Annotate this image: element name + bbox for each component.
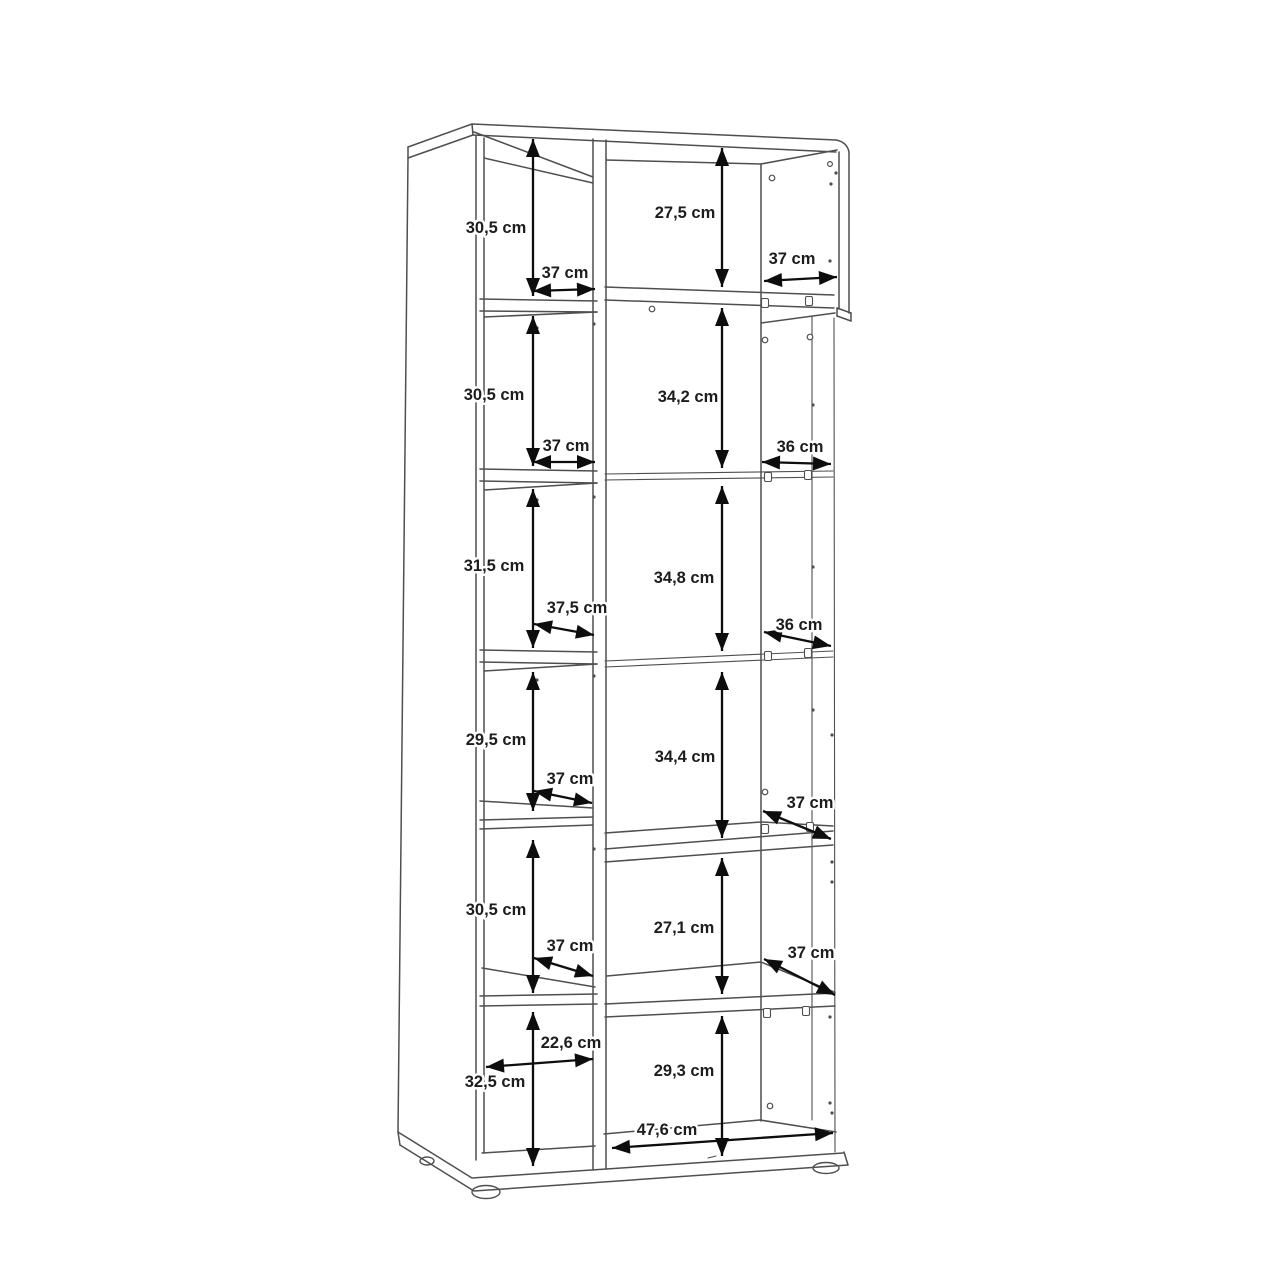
dim-label-left-height-2: 30,5 cm [464,386,525,404]
dim-arrow-left-width-3 [534,624,594,635]
dim-label-left-width-4: 37 cm [547,770,594,788]
dim-label-right-height-2: 34,2 cm [658,388,719,406]
dim-arrow-right-width-2 [762,462,831,464]
dim-label-right-width-3: 36 cm [776,616,823,634]
bottom-panel [398,1132,843,1178]
dim-label-left-width-3: 37,5 cm [547,599,608,617]
foot-front-left [472,1186,500,1199]
dim-label-left-width-2: 37 cm [543,437,590,455]
dim-arrow-left-width-6 [486,1059,593,1067]
dim-label-right-height-5: 27,1 cm [654,919,715,937]
dim-label-right-height-4: 34,4 cm [655,748,716,766]
dim-arrow-right-width-1 [764,277,837,281]
glass-shelf [605,651,833,661]
foot-front-right [813,1163,839,1174]
dim-label-left-height-3: 31,5 cm [464,557,525,575]
dim-label-left-height-5: 30,5 cm [466,901,527,919]
dim-label-left-height-6: 32,5 cm [465,1073,526,1091]
dim-label-right-height-1: 27,5 cm [655,204,716,222]
dim-arrow-left-width-5 [534,958,593,976]
cabinet-outline [398,124,851,1191]
dim-arrow-right-width-5 [764,959,835,995]
dim-label-right-width-1: 37 cm [769,250,816,268]
shelf [480,299,597,301]
left-side-panel [398,158,408,1132]
dim-arrow-left-width-4 [534,791,592,803]
dim-label-left-height-4: 29,5 cm [466,731,527,749]
dim-label-right-width-5: 37 cm [788,944,835,962]
shelves-right-column [605,287,835,1017]
diagram-canvas: 30,5 cm 30,5 cm 31,5 cm 29,5 cm 30,5 cm … [0,0,1280,1280]
dim-label-left-height-1: 30,5 cm [466,219,527,237]
dim-label-left-width-1: 37 cm [542,264,589,282]
shelves-left-column [480,299,597,1006]
shelf [605,287,834,295]
dim-label-right-width-4: 37 cm [787,794,834,812]
shelf [480,650,597,652]
dim-label-right-height-3: 34,8 cm [654,569,715,587]
shelf [480,801,593,808]
glass-shelf [605,471,833,474]
top-panel [408,124,849,152]
shelf [605,822,761,833]
dimension-labels: 30,5 cm 30,5 cm 31,5 cm 29,5 cm 30,5 cm … [464,204,835,1139]
dim-arrow-right-width-3 [764,632,831,646]
dim-label-left-width-6: 22,6 cm [541,1034,602,1052]
shelf [480,469,597,471]
cabinet-dimension-diagram: 30,5 cm 30,5 cm 31,5 cm 29,5 cm 30,5 cm … [0,0,1280,1280]
dim-arrow-left-width-1 [533,289,595,291]
dim-label-right-height-6: 29,3 cm [654,1062,715,1080]
dim-label-right-width-6: 47,6 cm [637,1121,698,1139]
shelf [607,962,761,976]
dim-label-left-width-5: 37 cm [547,937,594,955]
dim-label-right-width-2: 36 cm [777,438,824,456]
